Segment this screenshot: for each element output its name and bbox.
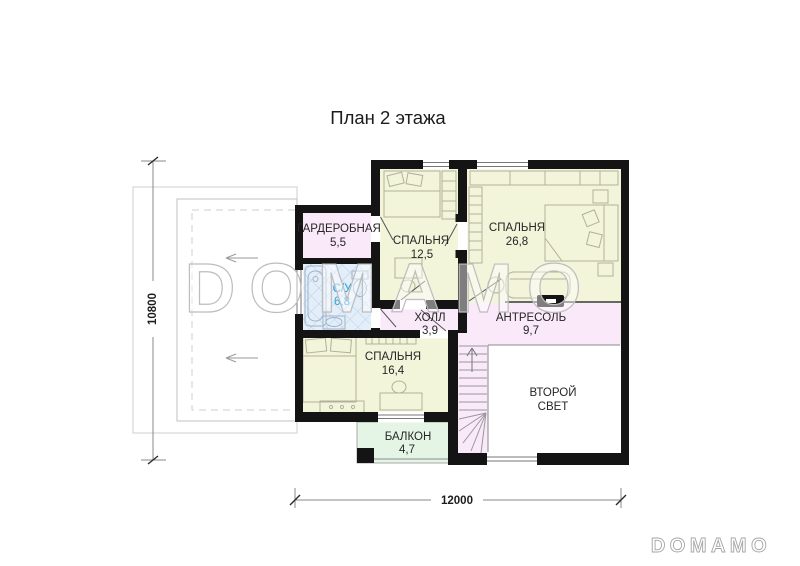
label-second-light-1: ВТОРОЙ [530,386,577,399]
wall-bedroom-mid-right [448,330,458,465]
wall-bedroom-mid-top [295,330,420,338]
balcony-pillar [357,448,374,463]
label-balcony: БАЛКОН [385,431,432,443]
label-bedroom-mid: СПАЛЬНЯ [365,351,421,363]
watermark: DOMAMO [185,249,596,327]
dimension-horizontal: 12000 [290,488,626,508]
dimension-vertical: 10800 [141,157,166,464]
area-bedroom-mid: 16,4 [382,365,405,377]
area-balcony: 4,7 [399,444,415,456]
brand-logo: DOMAMO [651,535,771,557]
window-bottom-right [487,453,537,466]
wall-bedroom-mid-bottom [295,412,448,422]
door-bedrooms-divider [458,222,468,250]
floor-plan-drawing: ГАРДЕРОБНАЯ 5,5 СПАЛЬНЯ 12,5 СПАЛЬНЯ 26,… [0,0,800,566]
label-wardrobe: ГАРДЕРОБНАЯ [297,223,381,235]
area-bedroom-large: 26,8 [506,236,528,248]
wall-right [621,160,629,465]
label-bedroom-small: СПАЛЬНЯ [393,235,449,247]
dimension-vertical-value: 10800 [147,293,159,325]
dimension-horizontal-value: 12000 [441,495,473,507]
wall-bottom-right [448,453,629,465]
label-bedroom-large: СПАЛЬНЯ [489,222,545,234]
floor-plan-page: ГАРДЕРОБНАЯ 5,5 СПАЛЬНЯ 12,5 СПАЛЬНЯ 26,… [0,0,800,566]
plan-title: План 2 этажа [330,107,446,128]
window-top-2 [477,159,528,170]
room-second-light [488,345,621,453]
wall-wardrobe-top [295,205,380,213]
window-top-1 [423,159,449,170]
door-jamb [456,214,465,222]
area-wardrobe: 5,5 [330,237,346,249]
balcony-door [378,412,424,423]
label-second-light-2: СВЕТ [538,401,569,413]
